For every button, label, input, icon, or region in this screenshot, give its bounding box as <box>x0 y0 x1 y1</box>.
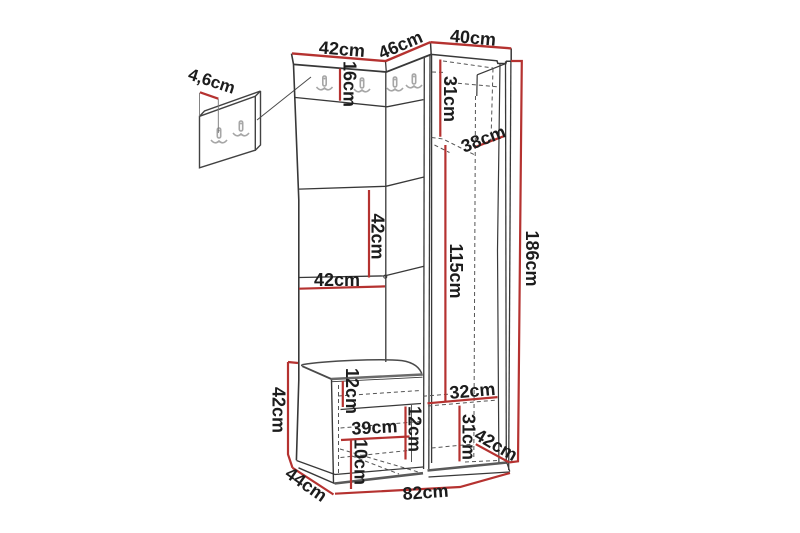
svg-text:42cm: 42cm <box>318 37 365 61</box>
svg-text:42cm: 42cm <box>368 213 388 259</box>
svg-text:186cm: 186cm <box>522 230 542 286</box>
svg-text:39cm: 39cm <box>351 416 398 438</box>
svg-text:16cm: 16cm <box>340 61 360 107</box>
svg-text:115cm: 115cm <box>446 243 466 298</box>
svg-text:42cm: 42cm <box>314 270 360 290</box>
svg-text:82cm: 82cm <box>402 481 449 504</box>
svg-text:42cm: 42cm <box>269 387 289 433</box>
svg-text:10cm: 10cm <box>351 439 371 485</box>
svg-text:31cm: 31cm <box>440 76 460 122</box>
svg-text:12cm: 12cm <box>342 368 362 414</box>
svg-text:40cm: 40cm <box>449 26 497 50</box>
svg-text:12cm: 12cm <box>405 406 425 452</box>
svg-text:32cm: 32cm <box>449 379 497 403</box>
